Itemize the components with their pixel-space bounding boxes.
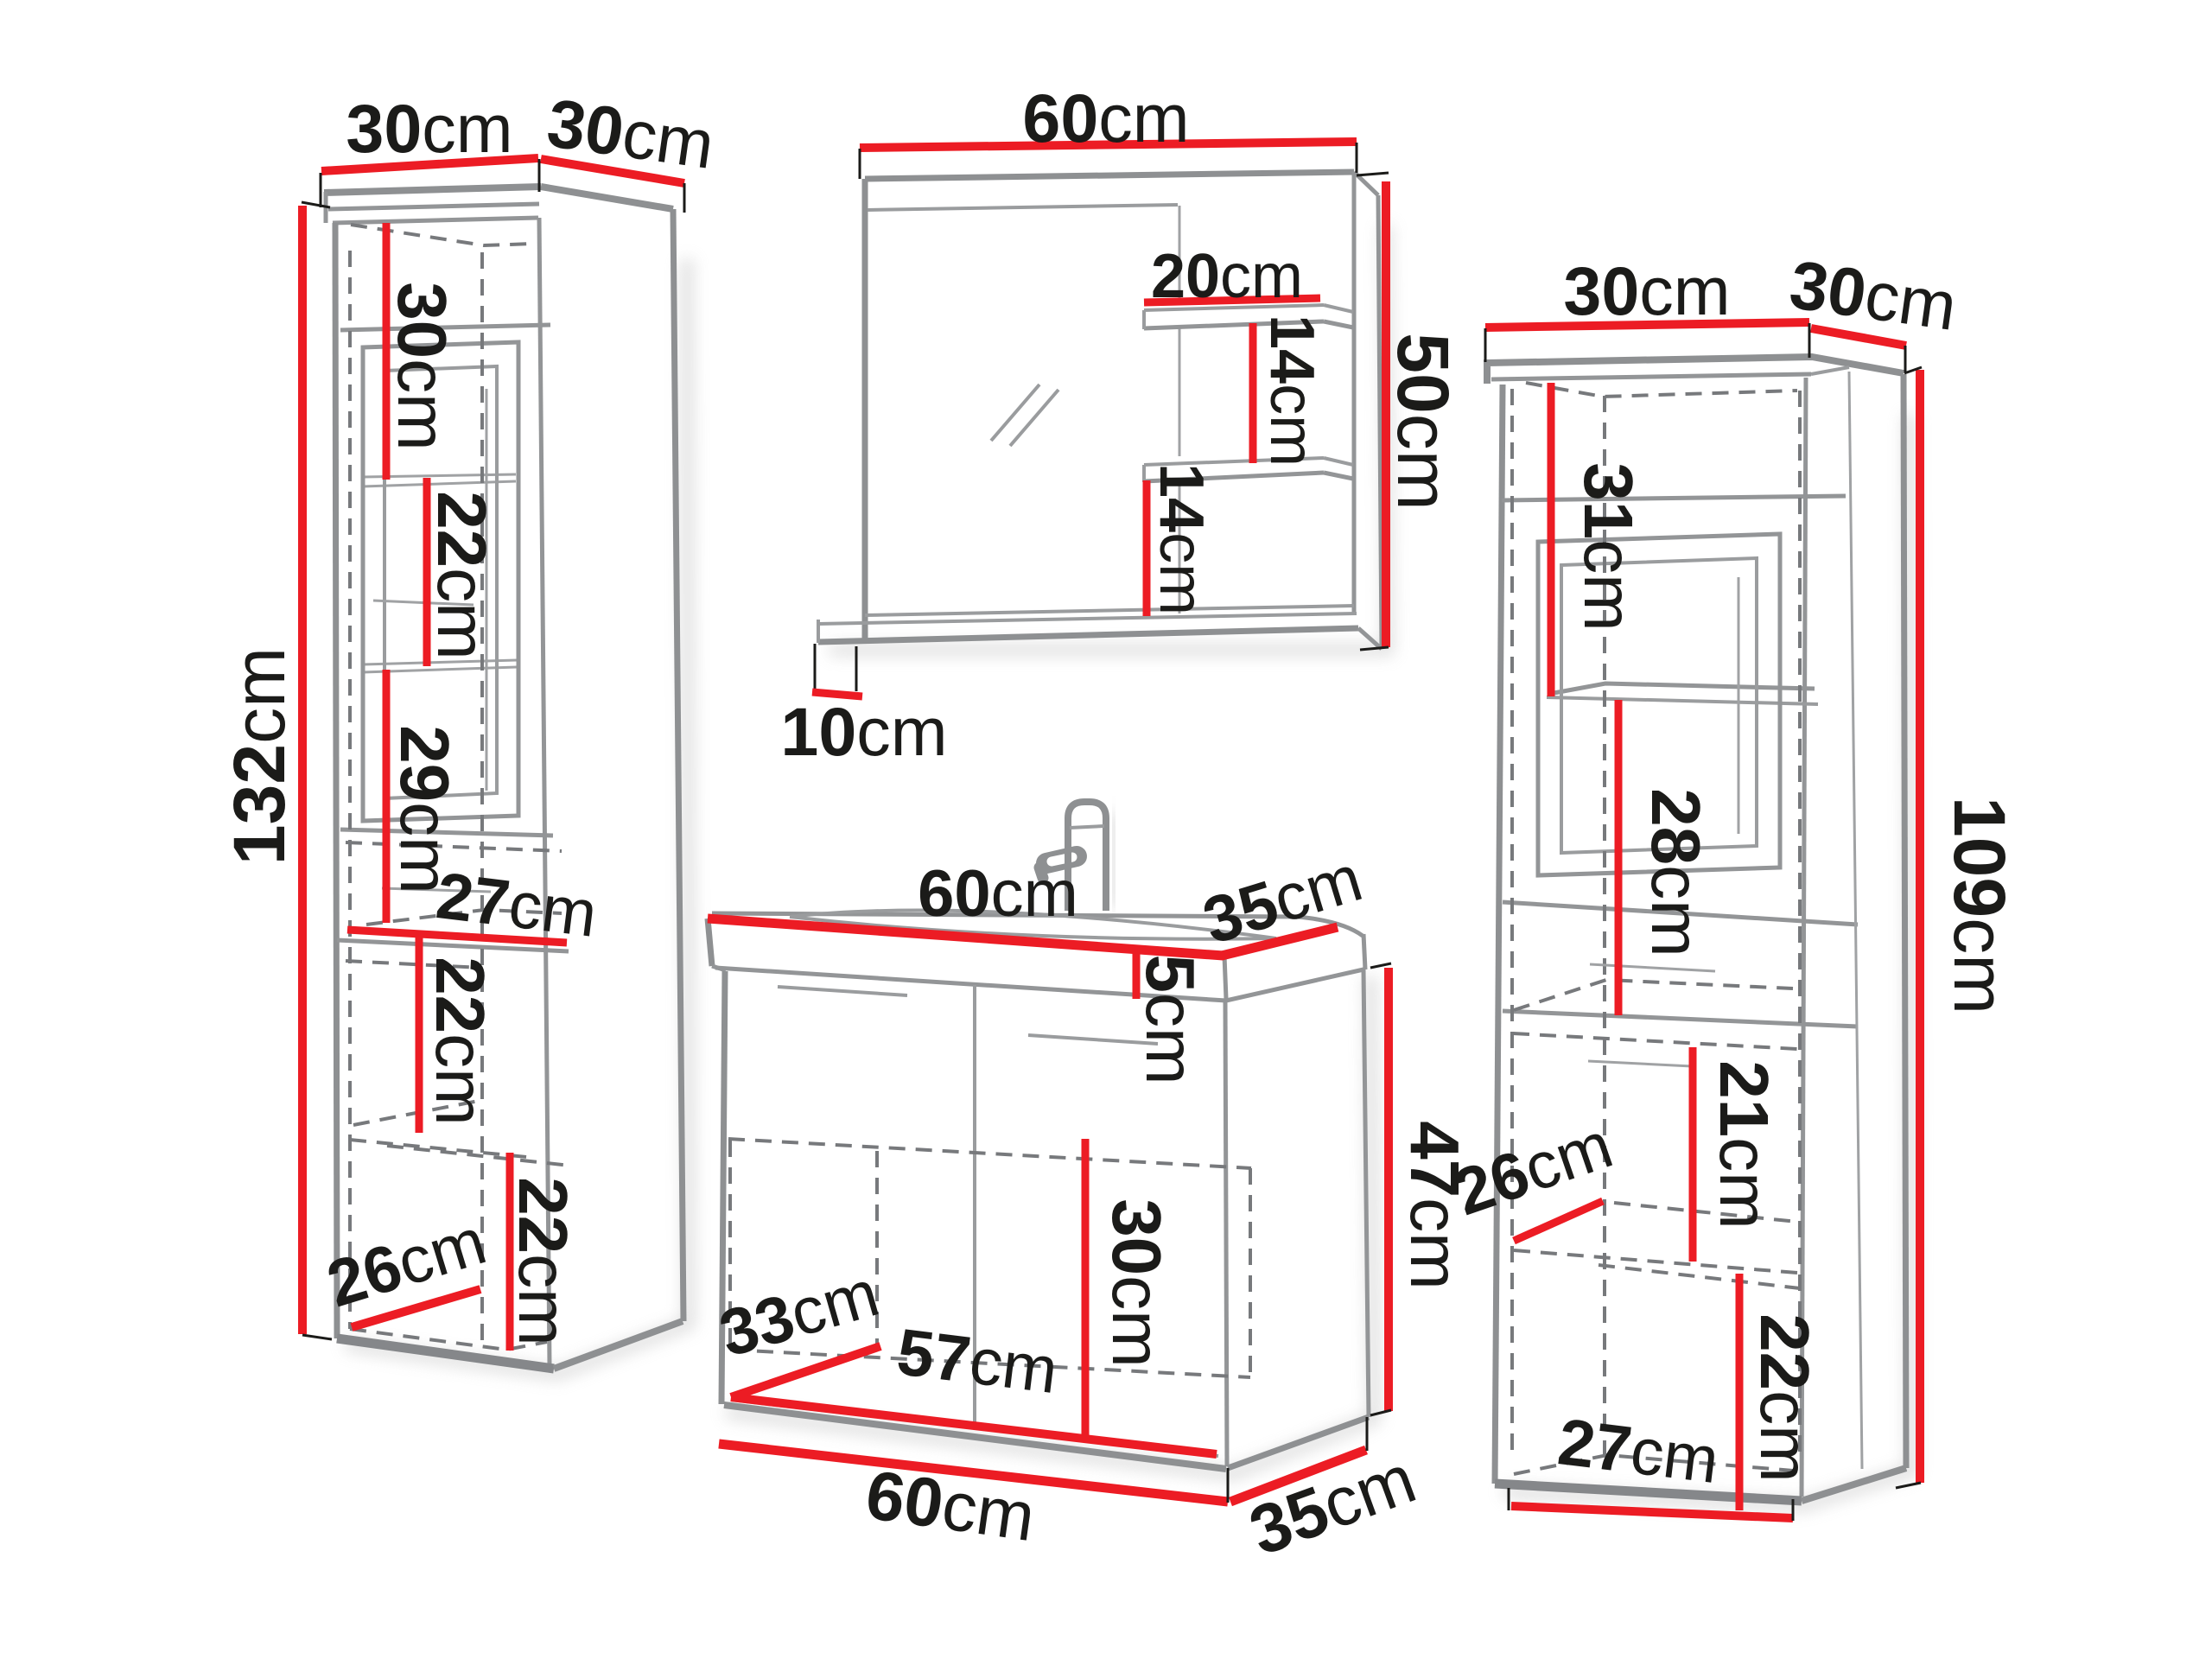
svg-text:22cm: 22cm [423,491,500,660]
svg-text:14cm: 14cm [1147,463,1216,615]
svg-text:109cm: 109cm [1939,797,2020,1014]
svg-text:30cm: 30cm [384,282,461,451]
svg-text:22cm: 22cm [1746,1313,1823,1483]
svg-text:50cm: 50cm [1382,333,1464,510]
svg-text:30cm: 30cm [1098,1198,1175,1368]
svg-text:30cm: 30cm [543,84,719,183]
svg-text:10cm: 10cm [780,693,947,770]
svg-text:22cm: 22cm [505,1177,582,1346]
svg-text:22cm: 22cm [422,957,499,1126]
svg-text:5cm: 5cm [1132,954,1209,1084]
svg-text:31cm: 31cm [1570,462,1647,632]
svg-text:60cm: 60cm [1022,79,1189,156]
svg-text:28cm: 28cm [1637,788,1714,957]
svg-text:14cm: 14cm [1257,315,1326,467]
svg-text:30cm: 30cm [1563,252,1730,329]
svg-text:60cm: 60cm [861,1456,1039,1555]
svg-text:26cm: 26cm [319,1205,494,1322]
svg-text:20cm: 20cm [1151,242,1303,311]
svg-text:21cm: 21cm [1706,1060,1783,1230]
svg-text:132cm: 132cm [219,647,300,865]
svg-text:60cm: 60cm [918,857,1078,931]
svg-text:30cm: 30cm [346,90,512,167]
svg-text:57cm: 57cm [893,1315,1062,1408]
